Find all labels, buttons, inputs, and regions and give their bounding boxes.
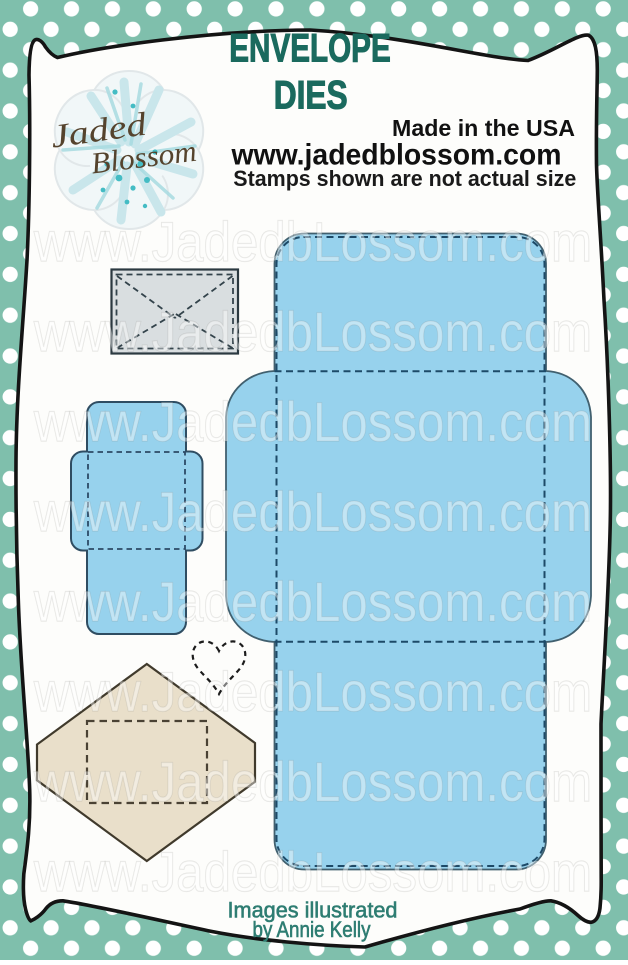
svg-text:www.JadedbLossom.com: www.JadedbLossom.com (33, 300, 592, 363)
svg-text:DIES: DIES (274, 74, 348, 118)
svg-text:www.JadedbLossom.com: www.JadedbLossom.com (33, 480, 592, 543)
svg-text:Stamps shown are not actual si: Stamps shown are not actual size (233, 166, 576, 191)
svg-text:www.JadedbLossom.com: www.JadedbLossom.com (33, 390, 592, 453)
svg-text:www.JadedbLossom.com: www.JadedbLossom.com (33, 210, 592, 273)
svg-text:www.JadedbLossom.com: www.JadedbLossom.com (33, 570, 592, 633)
svg-text:www.JadedbLossom.com: www.JadedbLossom.com (33, 660, 592, 723)
svg-text:www.JadedbLossom.com: www.JadedbLossom.com (33, 840, 592, 903)
svg-text:Made in the USA: Made in the USA (392, 115, 575, 141)
svg-text:www.JadedbLossom.com: www.JadedbLossom.com (33, 750, 592, 813)
svg-text:by Annie Kelly: by Annie Kelly (253, 917, 371, 942)
svg-text:ENVELOPE: ENVELOPE (229, 27, 391, 71)
